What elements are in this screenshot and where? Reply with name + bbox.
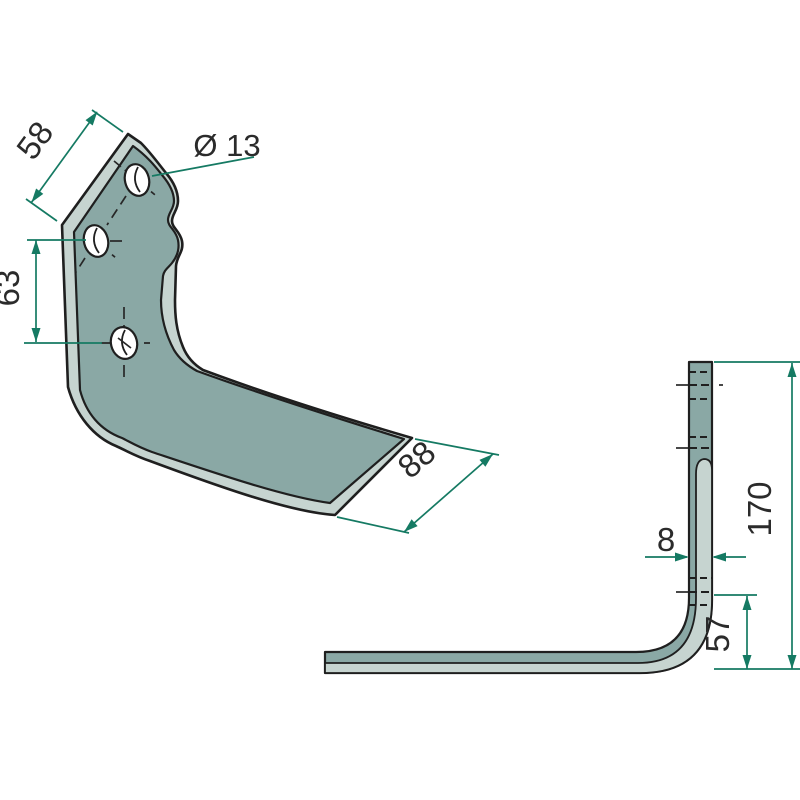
dim-thickness-label: 8: [657, 521, 675, 558]
dim-bend-height-label: 57: [699, 616, 736, 653]
technical-drawing: 58 Ø 13 63 88: [0, 0, 800, 800]
dim-hole-diameter: Ø 13: [152, 128, 261, 176]
dim-hole-diameter-label: Ø 13: [193, 128, 260, 163]
dim-hole-spacing-label: 63: [0, 270, 26, 307]
dim-total-height-label: 170: [741, 481, 778, 536]
side-profile-edge-strip: [325, 459, 712, 673]
drawing-canvas: 58 Ø 13 63 88: [0, 0, 800, 800]
side-view: 8 57 170: [325, 362, 800, 673]
dim-top-edge-label: 58: [9, 115, 61, 166]
front-view: 58 Ø 13 63 88: [0, 110, 499, 533]
side-profile-outline: [325, 362, 712, 673]
